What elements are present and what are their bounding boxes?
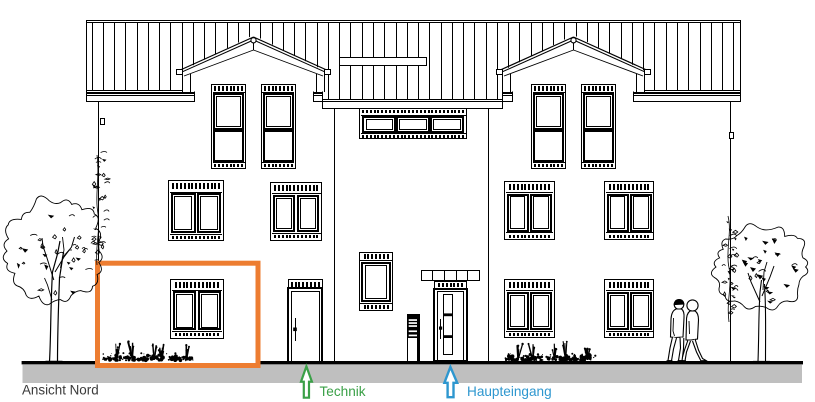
svg-text:Haupteingang: Haupteingang bbox=[467, 384, 552, 399]
svg-text:Technik: Technik bbox=[320, 384, 366, 399]
svg-text:Ansicht Nord: Ansicht Nord bbox=[22, 382, 99, 397]
